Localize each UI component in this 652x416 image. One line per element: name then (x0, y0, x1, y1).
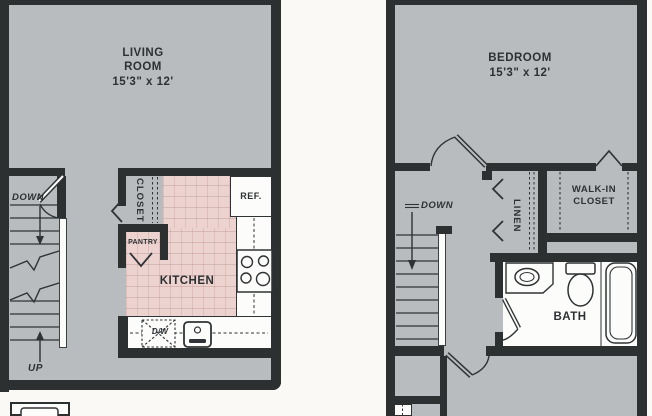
linen-label: LINEN (507, 191, 522, 241)
bath-sink (506, 263, 553, 293)
closet-door-chevron (112, 200, 122, 222)
stove (237, 250, 272, 292)
left-down-label: DOWN (12, 192, 54, 204)
bath-label: BATH (540, 310, 600, 324)
left-down-arrow (36, 206, 44, 245)
bedroom-door (431, 136, 486, 166)
closet-label: CLOSET (130, 175, 145, 225)
kitchen-label: KITCHEN (150, 274, 224, 288)
linen-door-chevrons (493, 179, 503, 241)
living-room-title-block: LIVING ROOM 15'3" x 12' (88, 46, 198, 89)
left-stairs-break-lines (10, 251, 59, 302)
right-stairs-door (447, 354, 489, 376)
linen-rod (530, 172, 535, 252)
dishwasher-label: D/W (146, 327, 174, 337)
pantry-label: PANTRY (124, 239, 162, 248)
walkin-door-chevron (596, 151, 622, 166)
bedroom-label: BEDROOM (455, 51, 585, 65)
closet-rod (153, 177, 158, 223)
lower-level-cutoff-fixture (21, 408, 58, 416)
bedroom-dimensions: 15'3" x 12' (455, 66, 585, 80)
bedroom-title-block: BEDROOM 15'3" x 12' (455, 51, 585, 80)
floorplan-image: REF. (0, 0, 652, 416)
right-down-label: DOWN (421, 200, 463, 212)
living-room-label: LIVING ROOM (88, 46, 198, 74)
left-up-arrow (36, 331, 44, 362)
toilet (566, 263, 595, 306)
walkin-closet-label: WALK-IN CLOSET (552, 184, 636, 207)
living-room-dimensions: 15'3" x 12' (88, 75, 198, 89)
bathtub (601, 262, 636, 346)
bath-door (503, 299, 519, 340)
right-stairs-treads (396, 235, 438, 339)
pantry-door-chevron (130, 253, 152, 266)
left-up-label: UP (28, 363, 54, 375)
kitchen-sink (184, 322, 211, 347)
left-stairs-treads (10, 205, 59, 340)
right-down-tick (405, 205, 419, 208)
right-down-arrow (408, 212, 416, 270)
